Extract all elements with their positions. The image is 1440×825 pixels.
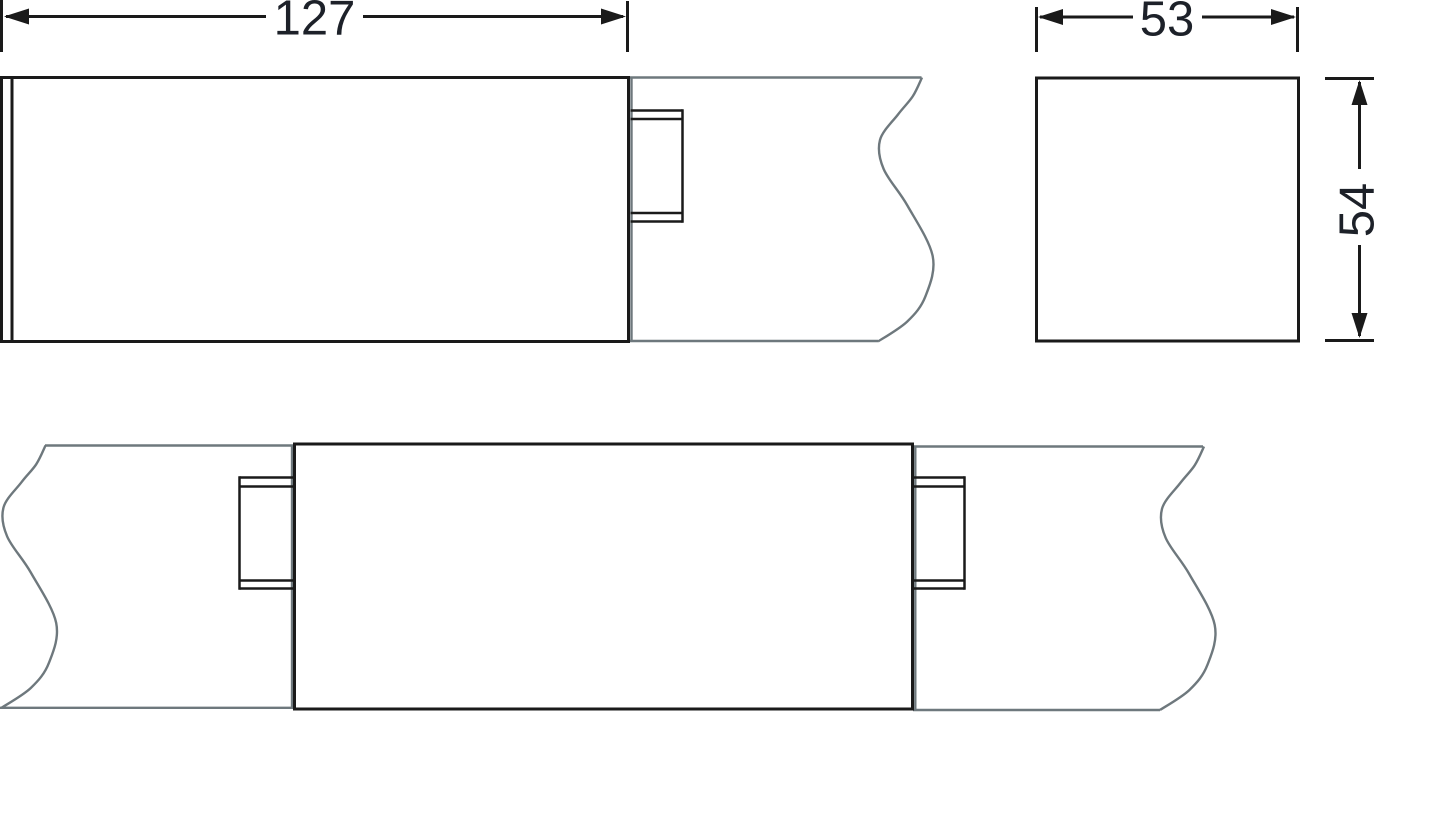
svg-text:54: 54: [1331, 183, 1385, 238]
svg-text:53: 53: [1140, 0, 1195, 46]
svg-text:127: 127: [274, 0, 356, 46]
